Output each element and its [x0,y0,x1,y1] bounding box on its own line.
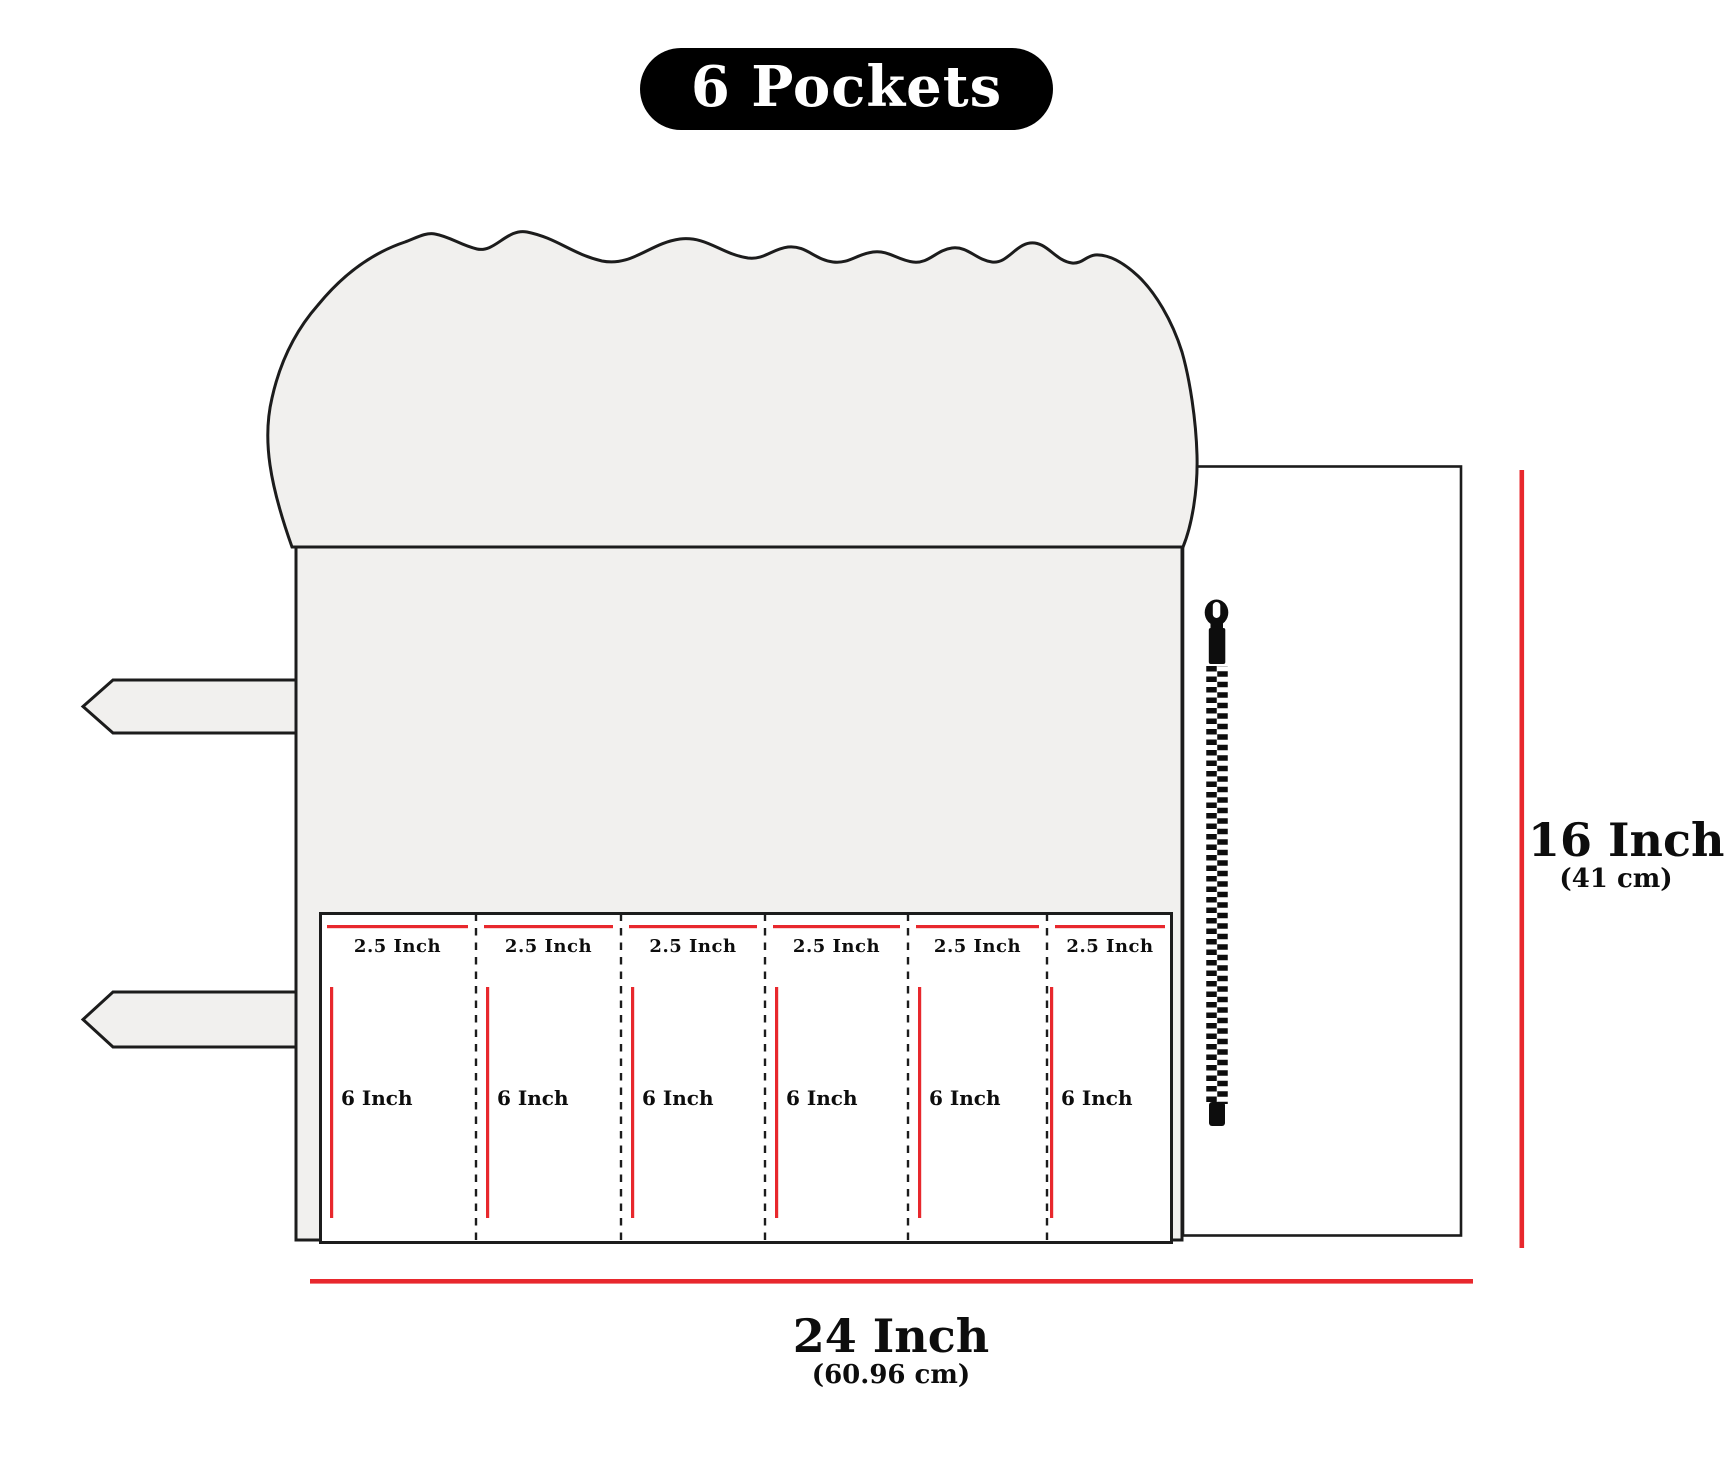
bag-drawing [0,0,1734,1469]
pocket-depth-label: 6 Inch [341,1086,413,1110]
tie-strap-bottom [83,992,297,1047]
pocket-depth-label: 6 Inch [786,1086,858,1110]
pocket-depth-label: 6 Inch [642,1086,714,1110]
pocket-width-label: 2.5 Inch [765,936,908,957]
pocket-width-label: 2.5 Inch [908,936,1047,957]
height-dimension-metric: (41 cm) [1528,866,1704,893]
width-dimension-line [310,1279,1473,1284]
width-dimension-metric: (60.96 cm) [741,1362,1041,1389]
height-dimension-line [1520,470,1525,1248]
pocket-depth-label: 6 Inch [929,1086,1001,1110]
width-dimension-label: 24 Inch [741,1312,1041,1360]
top-flap [268,232,1197,547]
tie-strap-top [83,680,297,733]
pocket-width-label: 2.5 Inch [621,936,765,957]
pocket-depth-label: 6 Inch [1061,1086,1133,1110]
zipper-slider [1209,628,1226,664]
pocket-depth-label: 6 Inch [497,1086,569,1110]
pocket-width-label: 2.5 Inch [1047,936,1173,957]
pocket-width-label: 2.5 Inch [476,936,621,957]
pocket-panel [321,914,1172,1243]
height-dimension-label: 16 Inch [1528,816,1704,864]
zipper-bottom-stop [1209,1102,1225,1126]
pocket-organizer-diagram: 6 Pockets [0,0,1734,1469]
pocket-width-label: 2.5 Inch [319,936,476,957]
